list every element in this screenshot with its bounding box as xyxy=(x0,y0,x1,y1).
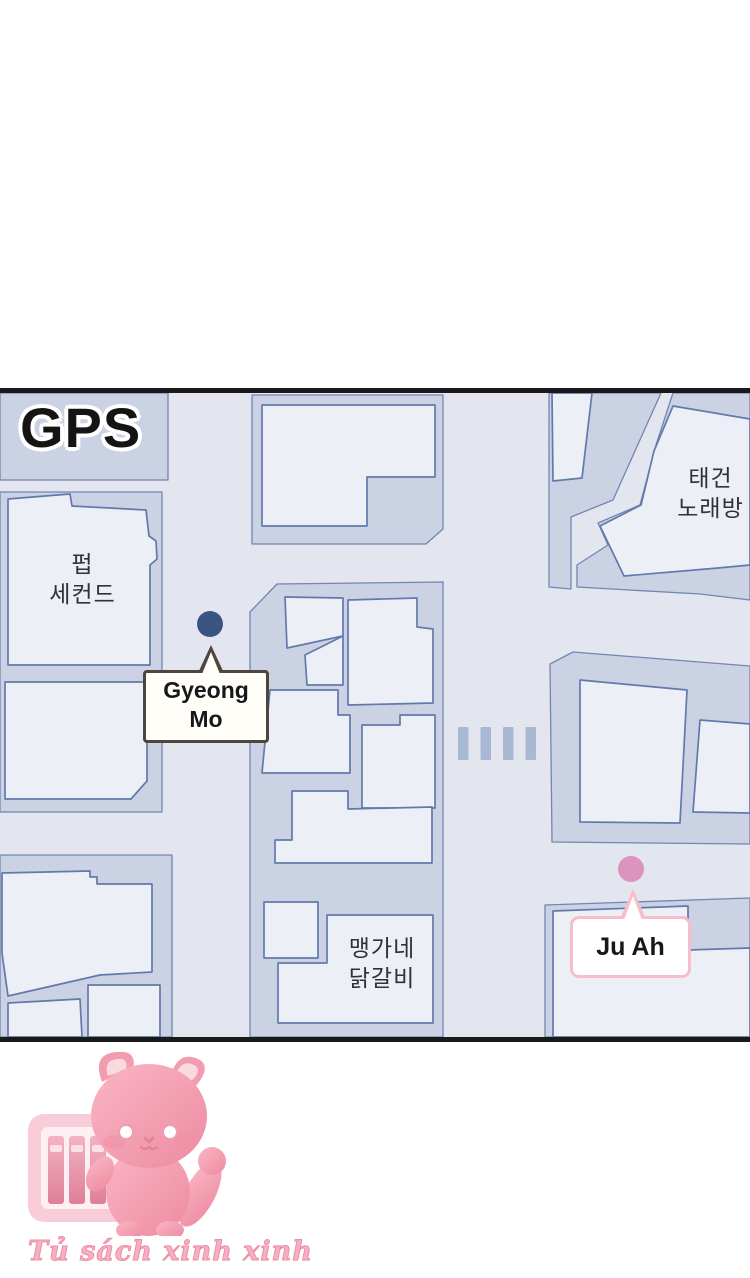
bubble-pointer xyxy=(202,652,220,674)
marker-bubble-gyeong-mo: Gyeong Mo xyxy=(143,670,269,743)
watermark-text: Tủ sách xinh xinh xyxy=(28,1236,243,1267)
place-label-line: 노래방 xyxy=(648,493,750,523)
marker-name-line: Mo xyxy=(146,705,266,734)
pink-cat-mascot-icon xyxy=(28,1046,243,1236)
map-panel: GPS 펍 세컨드 태건 노래방 맹가네 닭갈비 Gyeong Mo Ju Ah xyxy=(0,388,750,1042)
pink-cat-mascot: Tủ sách xinh xinh xyxy=(28,1046,243,1267)
place-label-maengga-dakgalbi: 맹가네 닭갈비 xyxy=(318,933,446,994)
gps-label: GPS xyxy=(20,395,141,460)
page-root: GPS 펍 세컨드 태건 노래방 맹가네 닭갈비 Gyeong Mo Ju Ah xyxy=(0,0,750,1278)
place-label-line: 펍 xyxy=(10,549,155,579)
marker-name-line: Gyeong xyxy=(146,676,266,705)
marker-name-line: Ju Ah xyxy=(596,933,665,962)
place-label-line: 세컨드 xyxy=(10,579,155,609)
bubble-pointer xyxy=(624,896,642,920)
place-label-line: 태건 xyxy=(648,463,750,493)
marker-dot-gyeong-mo xyxy=(197,611,223,637)
place-label-pub-second: 펍 세컨드 xyxy=(10,549,155,610)
marker-dot-ju-ah xyxy=(618,856,644,882)
place-label-line: 맹가네 xyxy=(318,933,446,963)
marker-bubble-ju-ah: Ju Ah xyxy=(570,916,691,978)
place-label-line: 닭갈비 xyxy=(318,963,446,993)
place-label-taegeon-karaoke: 태건 노래방 xyxy=(648,463,750,524)
